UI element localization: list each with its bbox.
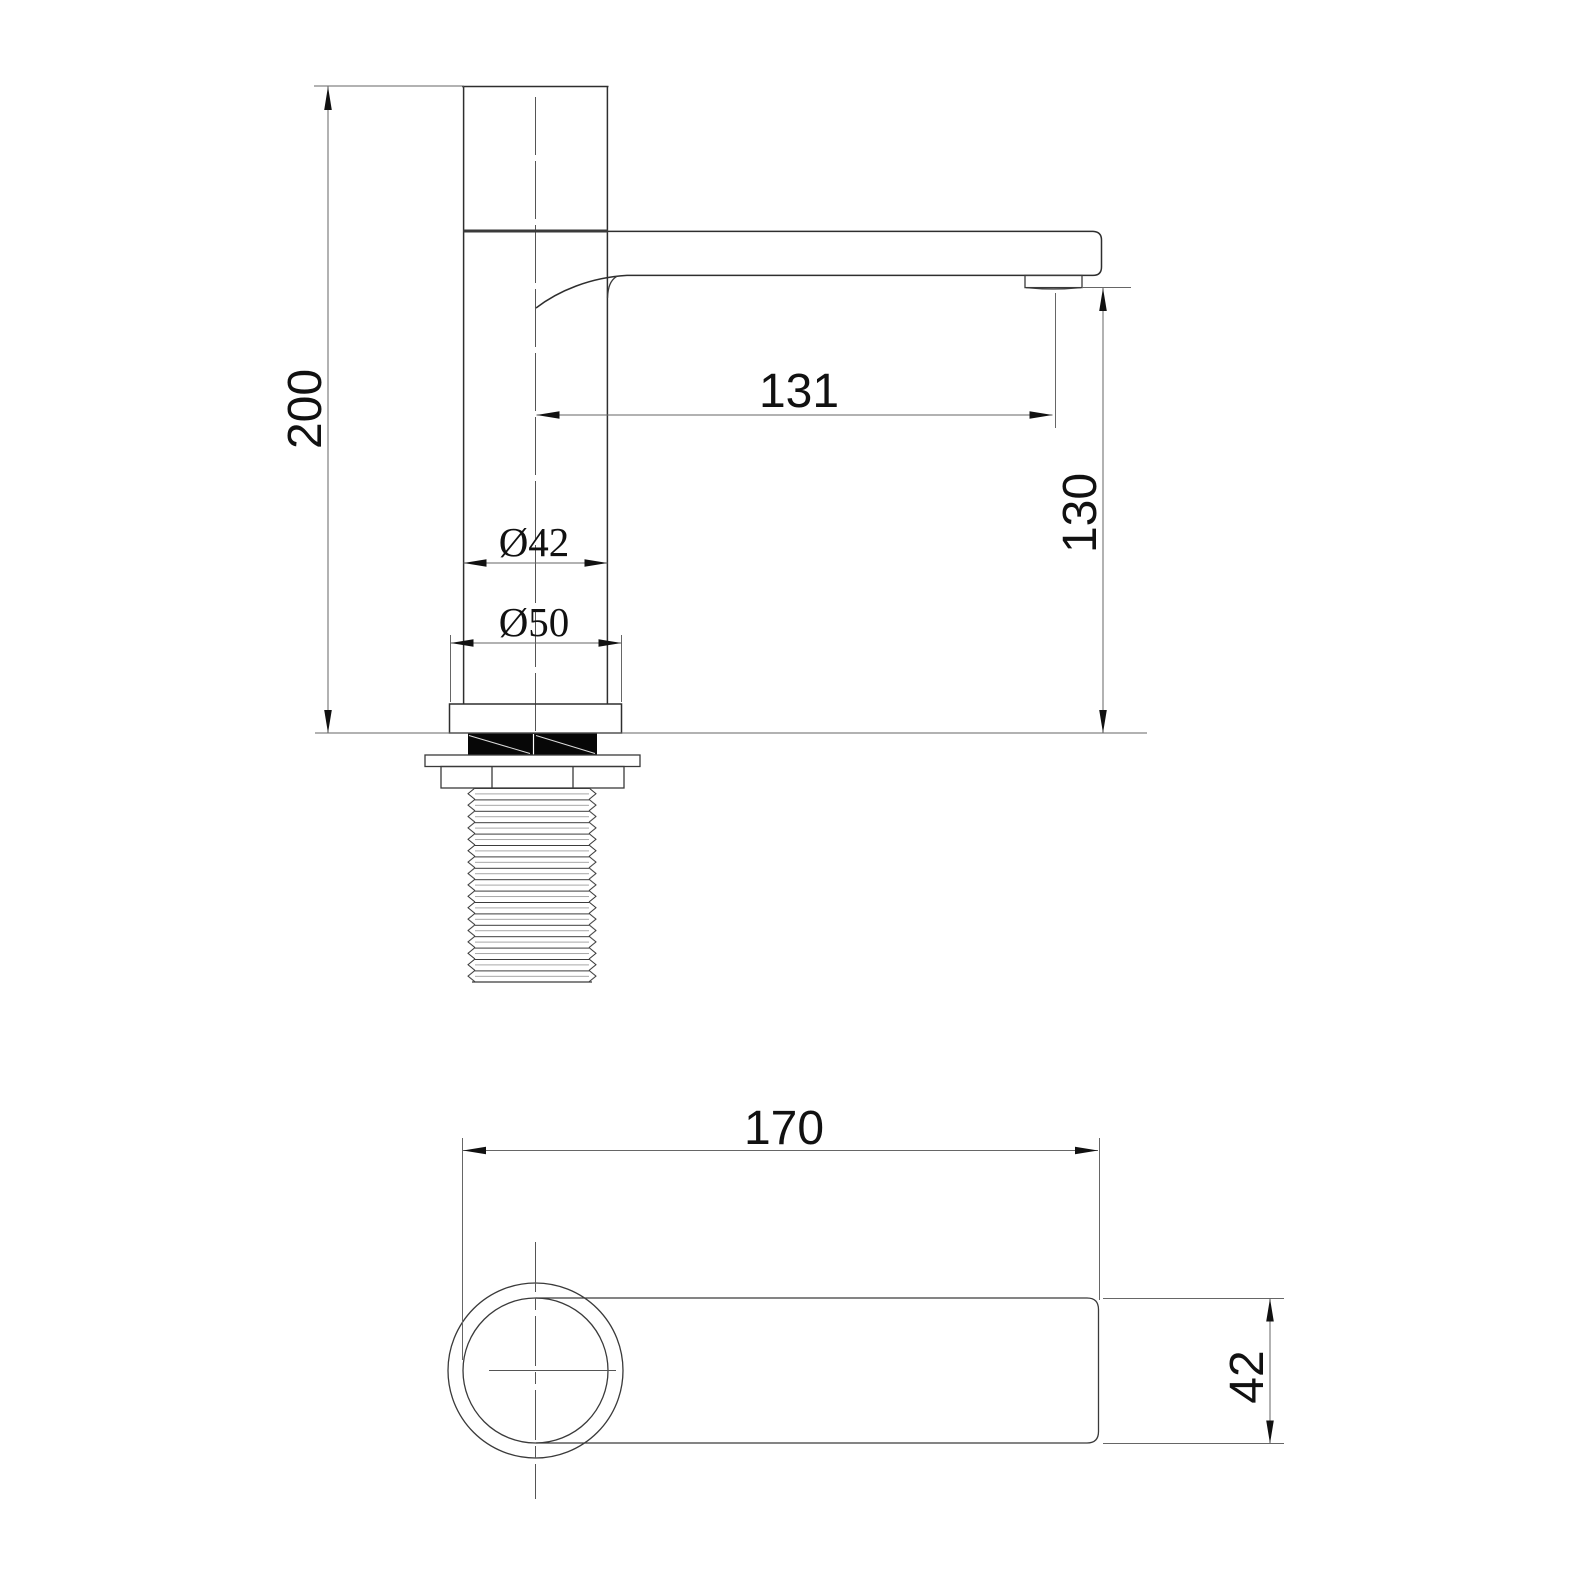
dim-body-diameter-label: Ø42 [499, 519, 570, 565]
mounting-base [315, 704, 1147, 982]
arrowhead-left [451, 639, 474, 647]
arrowhead-right [1030, 411, 1053, 419]
dim-base-diameter-label: Ø50 [499, 599, 570, 645]
dim-reach: 131 [537, 293, 1056, 428]
dim-height: 200 [279, 86, 464, 733]
arrowhead-left [464, 559, 487, 567]
drawing-canvas: 200 131 130 Ø42 [0, 0, 1578, 1578]
dim-outlet-height: 130 [1054, 288, 1131, 734]
dim-height-label: 200 [279, 369, 332, 449]
spout-outline [536, 231, 1102, 308]
spout-body-blend-curve [608, 276, 618, 298]
side-view: 200 131 130 Ø42 [279, 86, 1147, 982]
spout-profile [536, 231, 1102, 308]
arrowhead-up [1099, 288, 1107, 311]
plan-spout-outline [536, 1298, 1099, 1443]
dim-length: 170 [463, 1102, 1100, 1360]
dim-reach-label: 131 [759, 365, 839, 418]
arrowhead-down [324, 710, 332, 733]
arrowhead-right [1075, 1147, 1098, 1155]
arrowhead-left [537, 411, 560, 419]
rubber-gasket [468, 734, 597, 756]
dim-outlet-height-label: 130 [1054, 473, 1107, 553]
dim-spout-width-label: 42 [1221, 1350, 1274, 1403]
dim-body-diameter: Ø42 [464, 519, 608, 567]
dim-spout-width: 42 [1103, 1299, 1284, 1444]
threaded-shank [467, 788, 597, 982]
gasket-fill [468, 734, 597, 756]
technical-drawing: 200 131 130 Ø42 [0, 0, 1578, 1578]
thread-pattern [467, 788, 597, 982]
aerator-outline [1025, 275, 1082, 287]
arrowhead-down [1266, 1421, 1274, 1444]
arrowhead-right [585, 559, 608, 567]
aerator [1025, 275, 1082, 289]
arrowhead-left [463, 1147, 486, 1155]
nut-outline [441, 767, 624, 789]
arrowhead-up [1266, 1299, 1274, 1322]
arrowhead-right [599, 639, 622, 647]
mounting-washer [425, 755, 640, 767]
arrowhead-up [324, 87, 332, 111]
dim-length-label: 170 [744, 1102, 824, 1155]
mounting-nut [441, 767, 624, 789]
arrowhead-down [1099, 710, 1107, 733]
plan-view: 170 42 [448, 1102, 1284, 1499]
